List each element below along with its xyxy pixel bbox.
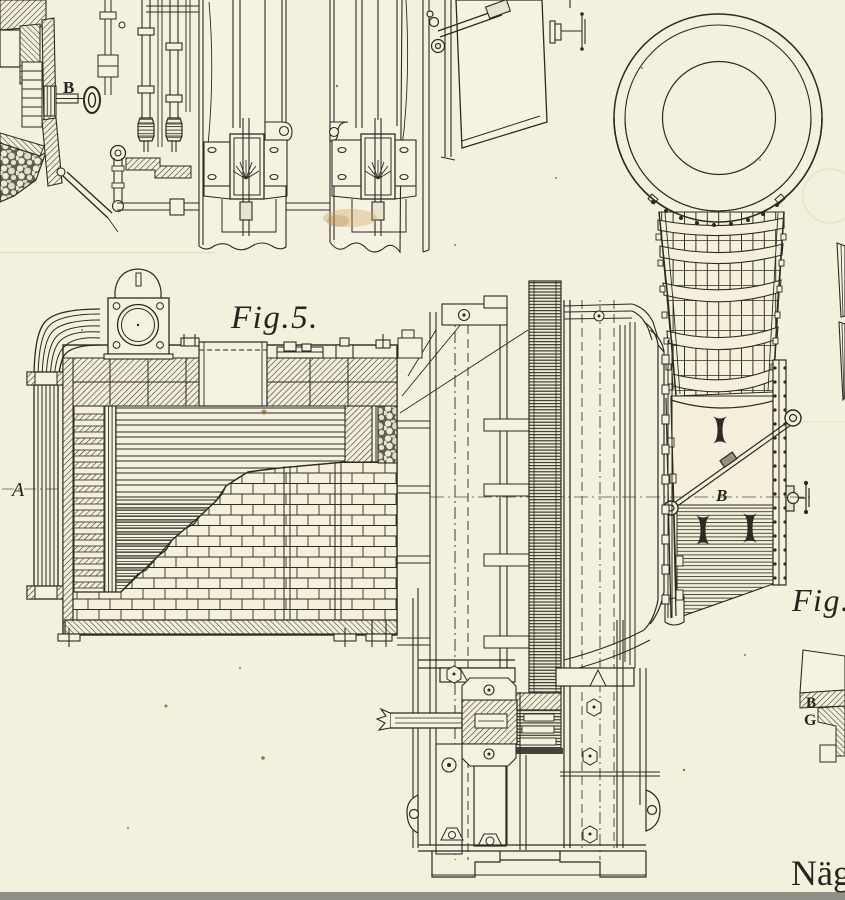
svg-text:B: B xyxy=(806,695,816,711)
svg-text:A: A xyxy=(10,479,25,501)
svg-text:B: B xyxy=(63,78,74,97)
svg-text:Näg: Näg xyxy=(791,853,845,893)
svg-text:G: G xyxy=(804,712,817,729)
svg-text:Fig.5.: Fig.5. xyxy=(230,300,319,336)
svg-text:B: B xyxy=(715,486,727,505)
svg-text:Fig.: Fig. xyxy=(791,582,845,618)
